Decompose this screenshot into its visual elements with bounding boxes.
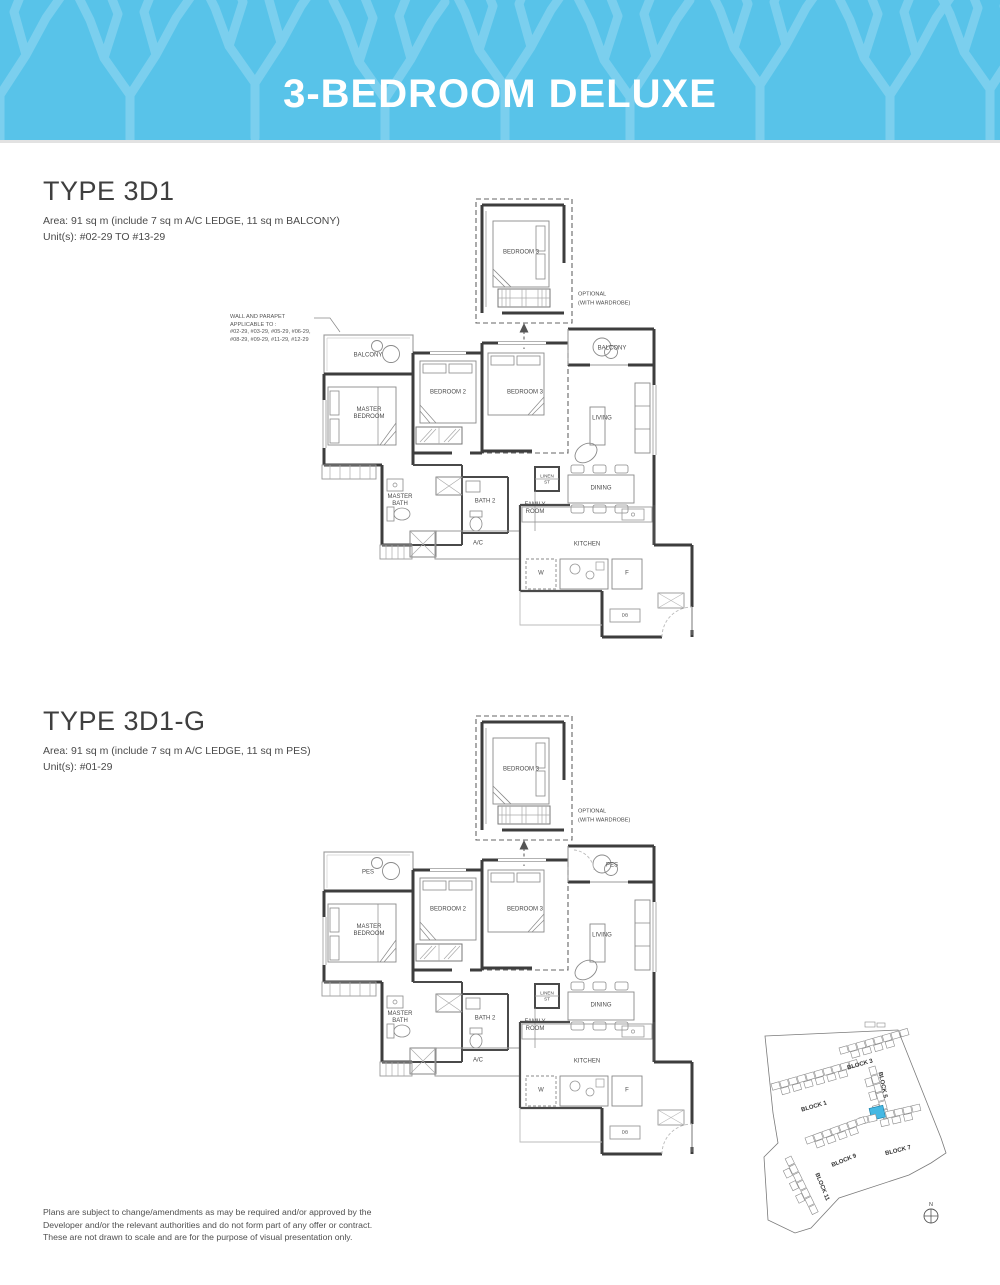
appliance-label-washer: W [538,1087,544,1094]
room-label-bath2: BATH 2 [475,1015,496,1022]
block-7-cluster [857,1097,922,1131]
block-11-cluster [779,1156,818,1218]
room-label-master-bedroom: MASTER BEDROOM [345,924,393,938]
room-label-kitchen: KITCHEN [574,1058,600,1065]
room-label-pes-right: PES [606,862,618,869]
north-label: N [929,1202,933,1208]
floor-plan-type-3d1g: BEDROOM 3 OPTIONAL (WITH WARDROBE) PES M… [230,712,700,1182]
db-label: DB [622,1129,628,1135]
brochure-page: { "header": { "title": "3-BEDROOM DELUXE… [0,0,1000,1285]
room-label-dining: DINING [591,1002,612,1009]
room-label-family-room: FAMILY ROOM [518,1019,552,1033]
room-label-ac-ledge: A/C [473,1057,483,1064]
optional-wardrobe-label: (WITH WARDROBE) [578,818,630,825]
room-label-ac-ledge: A/C [473,540,483,547]
room-label-linen: LINEN ST [537,474,557,485]
block-3-cluster [839,1028,911,1061]
appliance-label-fridge: F [625,570,629,577]
room-label-master-bedroom: MASTER BEDROOM [345,407,393,421]
room-label-bedroom3: BEDROOM 3 [507,906,543,913]
room-label-balcony-right: BALCONY [598,345,627,352]
room-label-dining: DINING [591,485,612,492]
tree-pattern-background [0,0,1000,140]
room-label-master-bath: MASTER BATH [382,494,418,508]
optional-label: OPTIONAL [578,809,606,816]
room-label-bedroom2: BEDROOM 2 [430,906,466,913]
header-banner: 3-BEDROOM DELUXE [0,0,1000,143]
pes-gate-arc [574,850,594,870]
room-label-bedroom3: BEDROOM 3 [507,389,543,396]
page-title: 3-BEDROOM DELUXE [0,74,1000,114]
wall-parapet-note: WALL AND PARAPET APPLICABLE TO : #02-29,… [230,314,325,344]
room-label-bedroom2: BEDROOM 2 [430,389,466,396]
optional-wardrobe-label: (WITH WARDROBE) [578,301,630,308]
floor-plan-3d1g-drawing [230,712,700,1182]
floor-plan-3d1-drawing [230,195,700,665]
room-label-bath2: BATH 2 [475,498,496,505]
optional-label: OPTIONAL [578,292,606,299]
room-label-master-bath: MASTER BATH [382,1011,418,1025]
room-label-pes-left: PES [362,869,374,876]
room-label-bedroom3-optional: BEDROOM 3 [503,766,539,773]
site-location-map: BLOCK 1 BLOCK 3 BLOCK 5 BLOCK 7 BLOCK 9 … [755,1020,990,1260]
room-label-bedroom3-optional: BEDROOM 3 [503,249,539,256]
appliance-label-fridge: F [625,1087,629,1094]
block-9-cluster [805,1117,868,1151]
room-label-family-room: FAMILY ROOM [518,502,552,516]
site-map-drawing [755,1020,990,1260]
room-label-kitchen: KITCHEN [574,541,600,548]
room-label-linen: LINEN ST [537,991,557,1002]
db-label: DB [622,612,628,618]
room-label-balcony-left: BALCONY [354,352,383,359]
room-label-living: LIVING [592,932,612,939]
disclaimer-text: Plans are subject to change/amendments a… [43,1206,372,1244]
floor-plan-type-3d1: WALL AND PARAPET APPLICABLE TO : #02-29,… [230,195,700,665]
appliance-label-washer: W [538,570,544,577]
north-compass-icon [924,1209,938,1223]
room-label-living: LIVING [592,415,612,422]
